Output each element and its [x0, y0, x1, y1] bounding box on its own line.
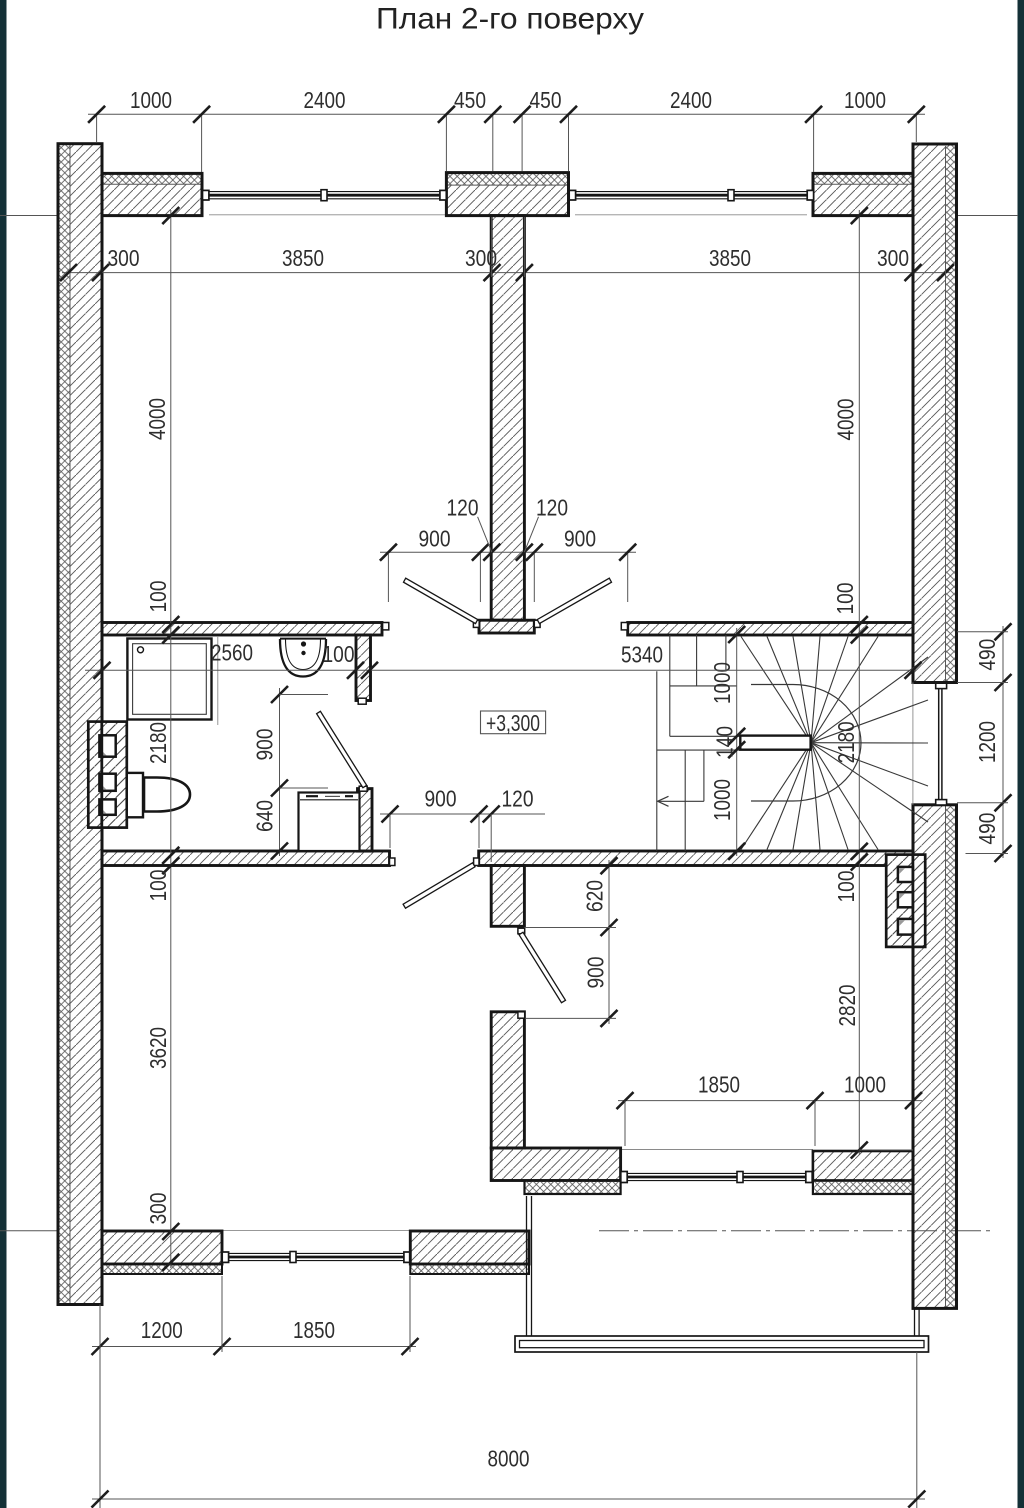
svg-text:300: 300 — [108, 245, 140, 271]
svg-text:100: 100 — [323, 641, 355, 667]
svg-text:2180: 2180 — [833, 721, 859, 763]
svg-text:1000: 1000 — [709, 779, 735, 821]
svg-text:450: 450 — [454, 87, 486, 113]
svg-text:2400: 2400 — [670, 87, 712, 113]
svg-text:490: 490 — [974, 813, 1000, 845]
svg-text:План 2-го поверху: План 2-го поверху — [376, 3, 644, 36]
svg-text:5340: 5340 — [621, 641, 663, 667]
svg-text:3850: 3850 — [709, 245, 751, 271]
svg-text:640: 640 — [251, 800, 277, 832]
svg-text:900: 900 — [582, 957, 608, 989]
svg-text:2820: 2820 — [834, 985, 860, 1027]
svg-text:1000: 1000 — [844, 1071, 886, 1097]
svg-text:2400: 2400 — [304, 87, 346, 113]
svg-text:100: 100 — [833, 871, 859, 903]
svg-text:300: 300 — [465, 245, 497, 271]
svg-text:140: 140 — [711, 726, 737, 758]
svg-text:900: 900 — [251, 729, 277, 761]
svg-text:120: 120 — [447, 494, 479, 520]
svg-text:3850: 3850 — [282, 245, 324, 271]
svg-text:620: 620 — [581, 880, 607, 912]
svg-text:120: 120 — [536, 494, 568, 520]
svg-text:1200: 1200 — [974, 721, 1000, 763]
svg-text:2180: 2180 — [145, 722, 171, 764]
svg-text:120: 120 — [502, 785, 534, 811]
svg-text:2560: 2560 — [211, 639, 253, 665]
svg-text:1000: 1000 — [709, 662, 735, 704]
svg-text:900: 900 — [564, 525, 596, 551]
svg-text:900: 900 — [425, 785, 457, 811]
svg-text:8000: 8000 — [488, 1445, 530, 1471]
svg-text:1000: 1000 — [130, 87, 172, 113]
svg-text:490: 490 — [974, 639, 1000, 671]
svg-text:1850: 1850 — [293, 1317, 335, 1343]
svg-text:100: 100 — [832, 583, 858, 615]
svg-text:1200: 1200 — [141, 1317, 183, 1343]
svg-text:100: 100 — [145, 870, 171, 902]
svg-text:300: 300 — [145, 1193, 171, 1225]
svg-text:3620: 3620 — [145, 1027, 171, 1069]
svg-text:1000: 1000 — [844, 87, 886, 113]
svg-text:+3,300: +3,300 — [486, 710, 540, 736]
svg-text:100: 100 — [145, 581, 171, 613]
svg-text:1850: 1850 — [698, 1071, 740, 1097]
svg-text:900: 900 — [419, 525, 451, 551]
svg-text:450: 450 — [530, 87, 562, 113]
svg-text:4000: 4000 — [144, 398, 170, 440]
svg-text:4000: 4000 — [832, 399, 858, 441]
svg-text:300: 300 — [877, 245, 909, 271]
